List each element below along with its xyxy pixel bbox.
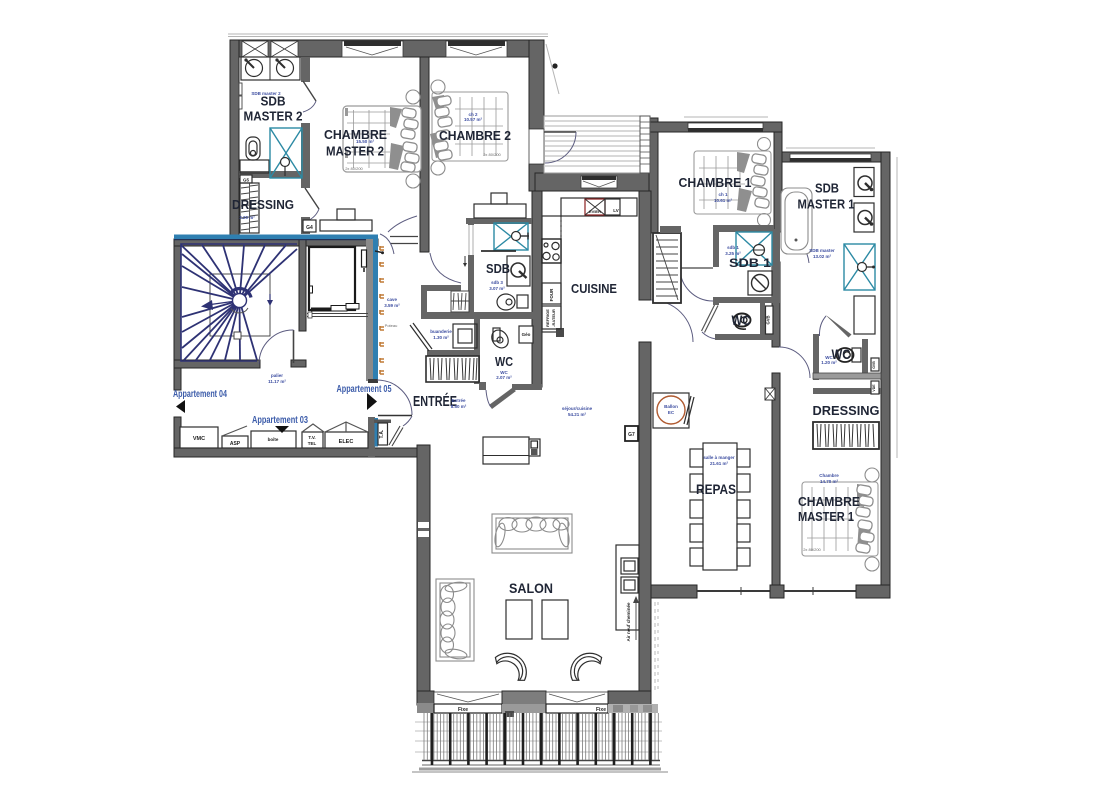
svg-text:Chambre: Chambre xyxy=(819,473,839,478)
svg-text:Géo: Géo xyxy=(522,332,531,337)
svg-text:salle à manger: salle à manger xyxy=(703,455,735,460)
svg-text:SDB master 2: SDB master 2 xyxy=(251,91,281,96)
svg-text:séjour/cuisine: séjour/cuisine xyxy=(562,406,593,411)
svg-text:EVIER: EVIER xyxy=(589,209,601,214)
svg-text:Entrée: Entrée xyxy=(451,398,466,403)
svg-text:G5: G5 xyxy=(243,178,250,183)
svg-text:3.59 m²: 3.59 m² xyxy=(384,303,400,308)
svg-text:MASTER 1: MASTER 1 xyxy=(798,509,854,524)
svg-text:GVB: GVB xyxy=(872,361,876,369)
svg-text:2x 80/200: 2x 80/200 xyxy=(803,547,821,552)
svg-text:palier: palier xyxy=(271,373,283,378)
svg-text:CHAMBRE 1: CHAMBRE 1 xyxy=(679,176,752,190)
svg-text:cave: cave xyxy=(387,297,398,302)
svg-text:VDE: VDE xyxy=(872,384,876,392)
svg-text:DRESSING: DRESSING xyxy=(813,403,880,418)
svg-text:boîte: boîte xyxy=(268,437,279,442)
svg-text:GVB: GVB xyxy=(766,315,771,324)
svg-text:SDB: SDB xyxy=(815,182,839,196)
svg-text:buanderie: buanderie xyxy=(430,329,452,334)
svg-text:CUISINE: CUISINE xyxy=(571,281,617,296)
svg-text:TEL: TEL xyxy=(308,441,317,446)
svg-text:-RATEUR: -RATEUR xyxy=(551,309,556,327)
svg-text:21.61 m²: 21.61 m² xyxy=(710,461,729,466)
svg-text:Ballon: Ballon xyxy=(664,404,678,409)
svg-text:54.21 m²: 54.21 m² xyxy=(568,412,587,417)
svg-text:ASP: ASP xyxy=(230,441,241,447)
svg-text:2x 80/200: 2x 80/200 xyxy=(345,166,363,171)
svg-text:Poteau: Poteau xyxy=(385,323,398,328)
svg-text:SDB master: SDB master xyxy=(809,248,835,253)
svg-text:8.50 m²: 8.50 m² xyxy=(451,404,467,409)
svg-text:FOUR: FOUR xyxy=(549,288,554,301)
svg-text:EC: EC xyxy=(668,410,675,415)
svg-text:SALON: SALON xyxy=(509,580,553,596)
svg-text:1.30 m²: 1.30 m² xyxy=(433,335,449,340)
svg-text:LV: LV xyxy=(613,208,618,213)
svg-text:T.A.: T.A. xyxy=(379,429,385,439)
svg-text:REPAS: REPAS xyxy=(696,481,736,497)
svg-text:Fixe: Fixe xyxy=(596,707,606,713)
svg-text:REFRIGE: REFRIGE xyxy=(545,309,550,327)
svg-text:Air neuf cheminée: Air neuf cheminée xyxy=(626,602,631,642)
svg-text:13.02 m²: 13.02 m² xyxy=(813,254,832,259)
svg-text:ch 1: ch 1 xyxy=(718,192,728,197)
svg-text:2x 80/200: 2x 80/200 xyxy=(483,152,501,157)
svg-text:SDB 1: SDB 1 xyxy=(729,258,772,270)
svg-text:3.25 m²: 3.25 m² xyxy=(725,251,741,256)
svg-text:Appartement 04: Appartement 04 xyxy=(173,389,227,400)
svg-text:CHAMBRE: CHAMBRE xyxy=(798,494,860,509)
svg-text:WC: WC xyxy=(495,355,513,369)
svg-text:3.20 m²: 3.20 m² xyxy=(239,215,255,220)
svg-text:sdb 1: sdb 1 xyxy=(727,245,739,250)
svg-text:10.57 m²: 10.57 m² xyxy=(464,117,483,122)
svg-text:10.61 m²: 10.61 m² xyxy=(714,198,733,203)
svg-text:Fixe: Fixe xyxy=(458,707,468,713)
svg-text:G7: G7 xyxy=(628,432,635,438)
svg-text:G4: G4 xyxy=(306,225,313,231)
svg-text:14.70 m²: 14.70 m² xyxy=(820,479,839,484)
svg-text:MASTER 1: MASTER 1 xyxy=(798,198,855,212)
svg-text:DRESSING: DRESSING xyxy=(232,197,294,212)
svg-text:15.50 m²: 15.50 m² xyxy=(356,139,375,144)
svg-text:VMC: VMC xyxy=(193,436,205,442)
svg-text:sdb 3: sdb 3 xyxy=(491,280,503,285)
svg-text:MASTER 2: MASTER 2 xyxy=(326,144,384,159)
svg-text:SDB: SDB xyxy=(486,261,510,276)
svg-text:2.07 m²: 2.07 m² xyxy=(496,375,512,380)
svg-text:Appartement 05: Appartement 05 xyxy=(337,384,392,395)
svg-text:MASTER 2: MASTER 2 xyxy=(244,109,303,124)
svg-text:Appartement 03: Appartement 03 xyxy=(252,415,308,426)
svg-text:T.V.: T.V. xyxy=(308,435,315,440)
svg-text:WC: WC xyxy=(732,313,751,328)
svg-text:1.20 m²: 1.20 m² xyxy=(821,360,837,365)
svg-text:ELEC: ELEC xyxy=(339,439,354,445)
svg-text:11.17 m²: 11.17 m² xyxy=(268,379,286,384)
svg-text:3.07 m²: 3.07 m² xyxy=(489,286,505,291)
svg-text:CHAMBRE 2: CHAMBRE 2 xyxy=(439,128,511,143)
